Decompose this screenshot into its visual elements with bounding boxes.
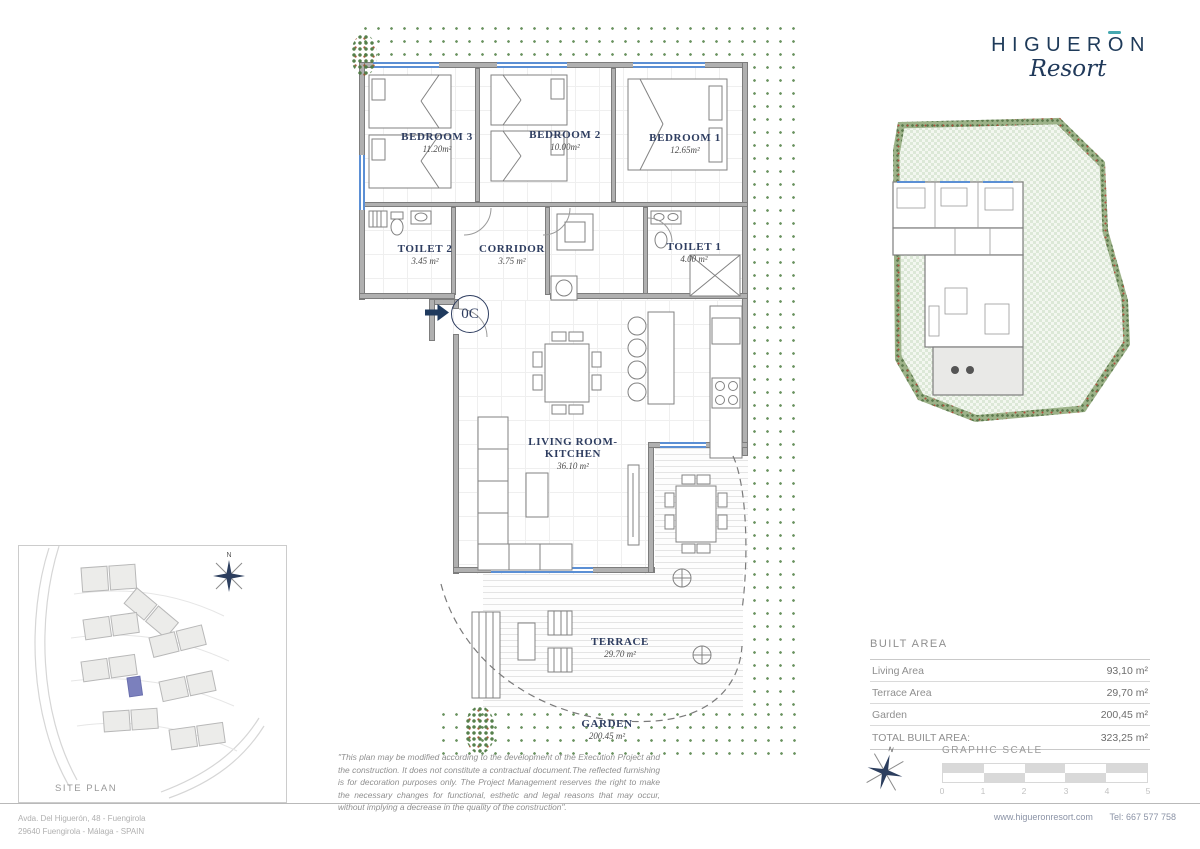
outdoor-table-icon <box>665 475 727 553</box>
graphic-scale-title: GRAPHIC SCALE <box>942 745 1148 756</box>
room-label-garden: GARDEN 200.45 m² <box>581 718 632 741</box>
unit-label: 0C <box>451 295 489 333</box>
sun-lounger-icon <box>472 612 500 698</box>
svg-text:N: N <box>226 552 231 559</box>
table-title: BUILT AREA <box>870 638 1150 650</box>
toilet-icon <box>655 232 667 248</box>
footer-address: Avda. Del Higuerón, 48 - Fuengirola 2964… <box>18 812 145 838</box>
bed-icon <box>491 75 567 125</box>
table-row: Terrace Area 29,70 m² <box>870 682 1150 704</box>
washer-icon <box>369 211 387 227</box>
footer-divider <box>0 803 1200 804</box>
footer-contact: www.higueronresort.com Tel: 667 577 758 <box>980 812 1176 822</box>
hb-box-icon <box>551 276 577 300</box>
coffee-table-icon <box>526 473 548 517</box>
tv-unit-icon <box>628 465 639 545</box>
toilet-icon <box>391 212 403 235</box>
bed-icon <box>369 75 451 128</box>
outdoor-chair-icon <box>548 648 572 672</box>
brand-suffix: N <box>1130 34 1151 56</box>
room-label-bedroom3: BEDROOM 3 11.20m² <box>401 131 473 154</box>
plot-apartment-footprint <box>885 108 1135 426</box>
side-table-icon <box>518 623 535 660</box>
north-compass-icon: N <box>862 742 908 798</box>
highlighted-unit <box>127 676 143 697</box>
brand-logo: HIGUERON Resort <box>988 34 1148 82</box>
sink-icon <box>411 211 431 224</box>
kitchen-counter-icon <box>710 306 742 458</box>
sink-icon <box>651 211 681 224</box>
closet-icon <box>557 214 593 250</box>
svg-text:N: N <box>887 746 894 754</box>
dining-table-icon <box>533 332 601 414</box>
main-floor-plan: BEDROOM 3 11.20m² BEDROOM 2 10.00m² BEDR… <box>345 18 805 758</box>
room-label-toilet1: TOILET 1 4.00 m² <box>667 241 722 264</box>
brand-name: HIGUERON <box>988 34 1154 57</box>
table-row: Garden 200,45 m² <box>870 704 1150 726</box>
built-area-table: BUILT AREA Living Area 93,10 m² Terrace … <box>870 638 1150 750</box>
plot-plan <box>885 108 1135 426</box>
site-plan-label: SITE PLAN <box>55 783 117 794</box>
room-label-terrace: TERRACE 29.70 m² <box>591 636 649 659</box>
footer-phone: Tel: 667 577 758 <box>1109 812 1176 822</box>
site-plan-drawing: N <box>19 546 286 802</box>
room-label-bedroom1: BEDROOM 1 12.65m² <box>649 132 721 155</box>
room-label-bedroom2: BEDROOM 2 10.00m² <box>529 129 601 152</box>
table-row: Living Area 93,10 m² <box>870 660 1150 682</box>
site-plan: N SITE PLAN <box>18 545 287 803</box>
scale-bar <box>942 763 1148 783</box>
room-label-living-kitchen: LIVING ROOM- KITCHEN 36.10 m² <box>528 436 617 471</box>
footer-website: www.higueronresort.com <box>994 812 1093 822</box>
disclaimer-text: "This plan may be modified according to … <box>338 751 660 814</box>
brand-prefix: HIGUER <box>991 34 1108 56</box>
macron-bar-icon <box>1108 31 1121 34</box>
floorplan-page: HIGUERON Resort <box>0 0 1200 849</box>
outdoor-chair-icon <box>548 611 572 635</box>
north-compass-icon: N <box>213 552 245 592</box>
brand-o-macron: O <box>1108 34 1130 57</box>
room-label-corridor: CORRIDOR 3.75 m² <box>479 243 545 266</box>
graphic-scale: GRAPHIC SCALE 0 1 2 3 4 5 <box>942 745 1148 798</box>
terrace-light-icon <box>673 569 691 587</box>
terrace-light-icon <box>693 646 711 664</box>
double-bed-icon <box>628 79 727 170</box>
room-label-toilet2: TOILET 2 3.45 m² <box>398 243 453 266</box>
scale-ticks: 0 1 2 3 4 5 <box>942 786 1148 798</box>
kitchen-island-icon <box>628 312 674 404</box>
brand-script: Resort <box>988 56 1148 82</box>
